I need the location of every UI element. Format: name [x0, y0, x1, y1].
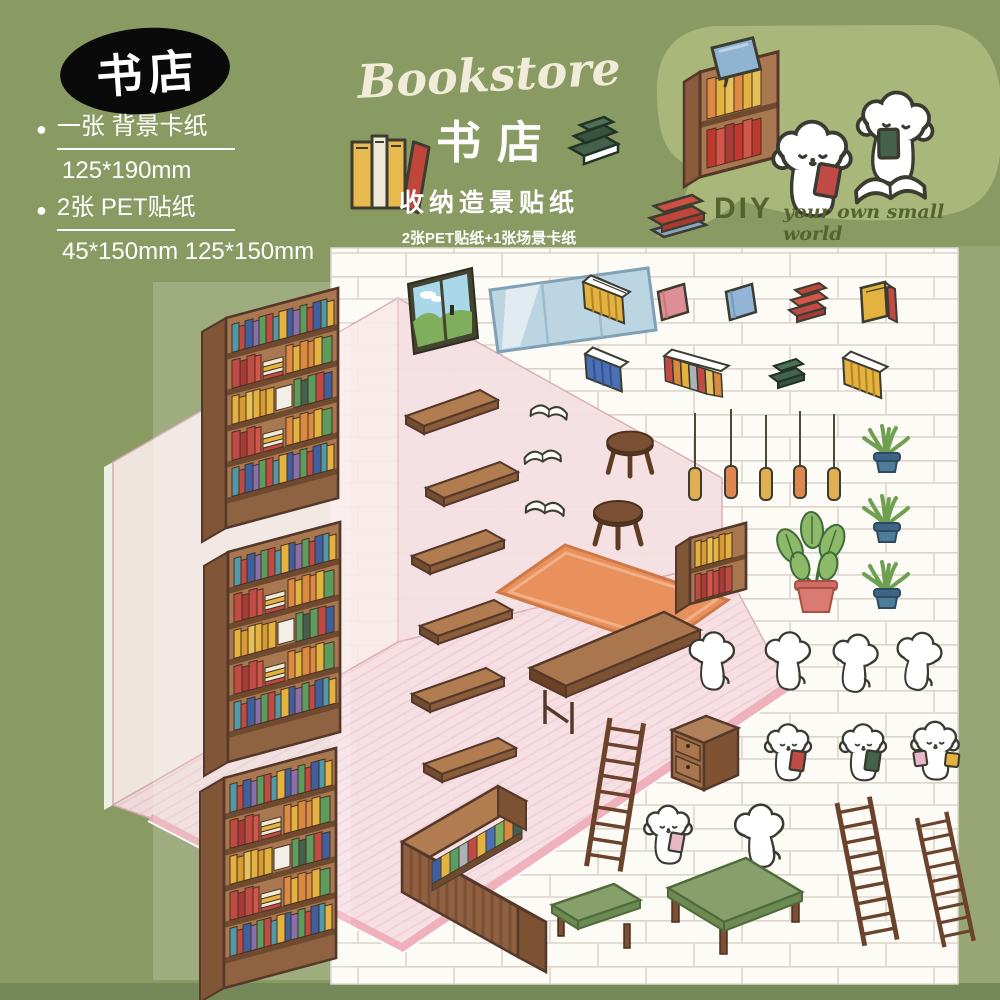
bookshelf-sticker-3 [200, 748, 336, 1000]
spec-label: 一张 背景卡纸 [57, 114, 235, 150]
spec-size: 125*190mm [36, 158, 346, 184]
bubble-red-book-stack [650, 195, 706, 237]
title-subtitle: 收纳造景贴纸 [348, 183, 630, 219]
standing-card-pink [658, 284, 688, 320]
book-yellow-red [861, 282, 897, 322]
title-english: Bookstore [347, 41, 631, 110]
diy-label: DIY [714, 192, 773, 226]
title-block: Bookstore 书店 收纳造景贴纸 2张PET贴纸+1张场景卡纸 [348, 48, 630, 248]
tagline-label: your own small world [783, 201, 994, 245]
bookshelf-sticker-2 [204, 522, 340, 776]
badge-label: 书店 [88, 34, 202, 108]
title-chinese: 书店 [348, 106, 630, 171]
diy-tagline: DIY your own small world [714, 192, 994, 245]
background-shade [958, 246, 1000, 986]
bottom-strip [0, 983, 1000, 1000]
bookshelf-sticker-1 [202, 288, 338, 542]
spec-label: 2张 PET贴纸 [57, 195, 235, 231]
drawer-cabinet-sticker [672, 716, 738, 790]
window-art-sticker [408, 268, 478, 354]
standing-card-blue [726, 284, 756, 320]
bullet-icon: ● [36, 201, 47, 221]
spec-item: ● 一张 背景卡纸 125*190mm [36, 114, 346, 185]
spec-size: 45*150mm 125*150mm [36, 239, 346, 265]
product-poster: { "badge": { "text": "书店" }, "specs": { … [0, 0, 1000, 1000]
title-description: 2张PET贴纸+1张场景卡纸 [348, 227, 630, 248]
spec-list: ● 一张 背景卡纸 125*190mm ● 2张 PET贴纸 45*150mm … [36, 114, 346, 276]
spec-item: ● 2张 PET贴纸 45*150mm 125*150mm [36, 195, 346, 266]
bullet-icon: ● [36, 120, 47, 140]
